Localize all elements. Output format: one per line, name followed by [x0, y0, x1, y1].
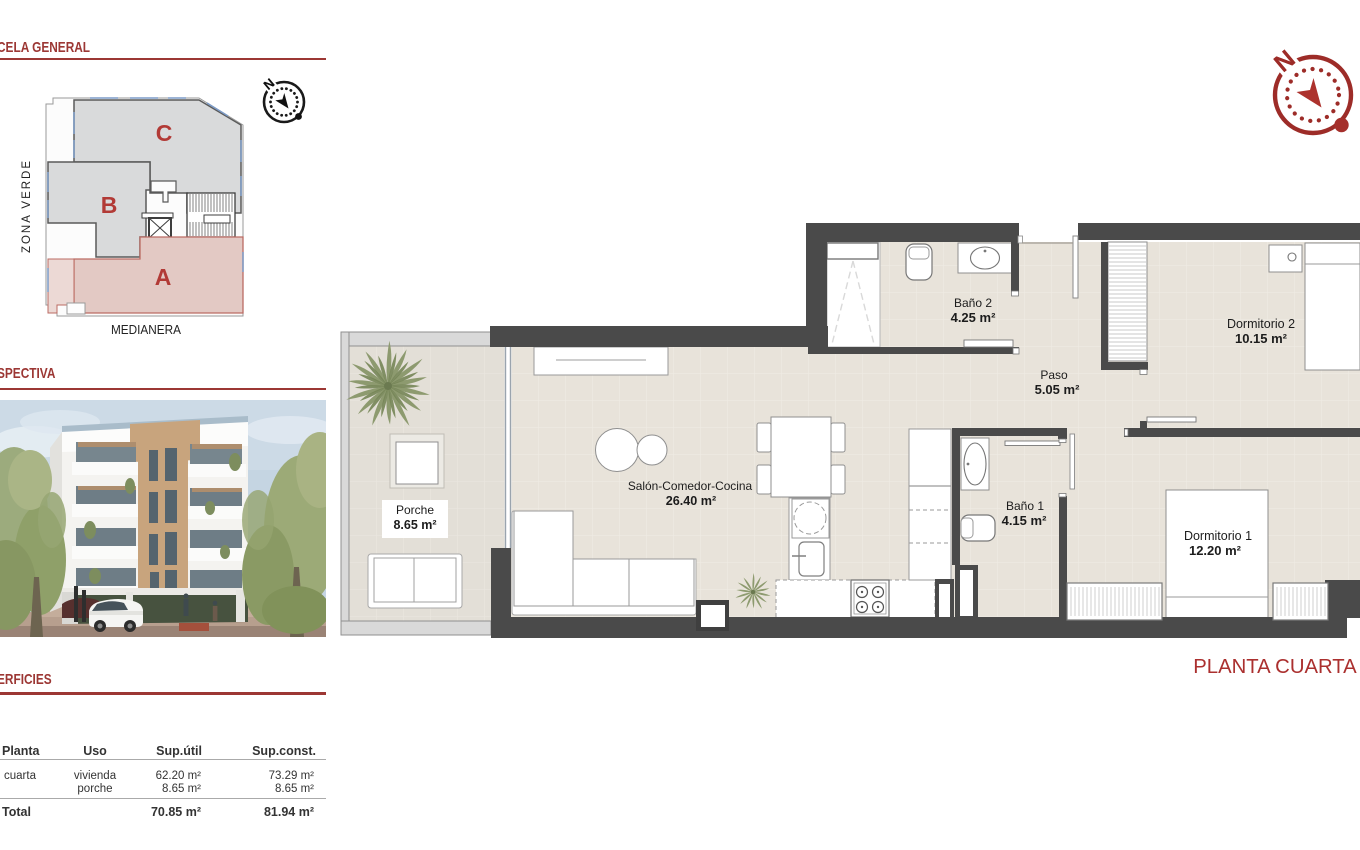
- svg-text:Paso: Paso: [1040, 368, 1068, 382]
- svg-text:Dormitorio 1: Dormitorio 1: [1184, 529, 1252, 543]
- svg-text:4.25 m²: 4.25 m²: [951, 310, 996, 325]
- svg-text:8.65 m²: 8.65 m²: [393, 518, 436, 532]
- svg-text:12.20 m²: 12.20 m²: [1189, 543, 1242, 558]
- svg-text:10.15 m²: 10.15 m²: [1235, 331, 1288, 346]
- svg-text:26.40 m²: 26.40 m²: [666, 494, 716, 508]
- svg-text:Dormitorio 2: Dormitorio 2: [1227, 317, 1295, 331]
- svg-text:5.05 m²: 5.05 m²: [1035, 382, 1080, 397]
- svg-text:Salón-Comedor-Cocina: Salón-Comedor-Cocina: [628, 479, 753, 493]
- svg-text:Baño 1: Baño 1: [1006, 499, 1044, 513]
- svg-text:4.15 m²: 4.15 m²: [1002, 513, 1047, 528]
- svg-text:Baño 2: Baño 2: [954, 296, 992, 310]
- svg-text:PLANTA CUARTA: PLANTA CUARTA: [1193, 656, 1357, 678]
- svg-text:Porche: Porche: [396, 503, 434, 517]
